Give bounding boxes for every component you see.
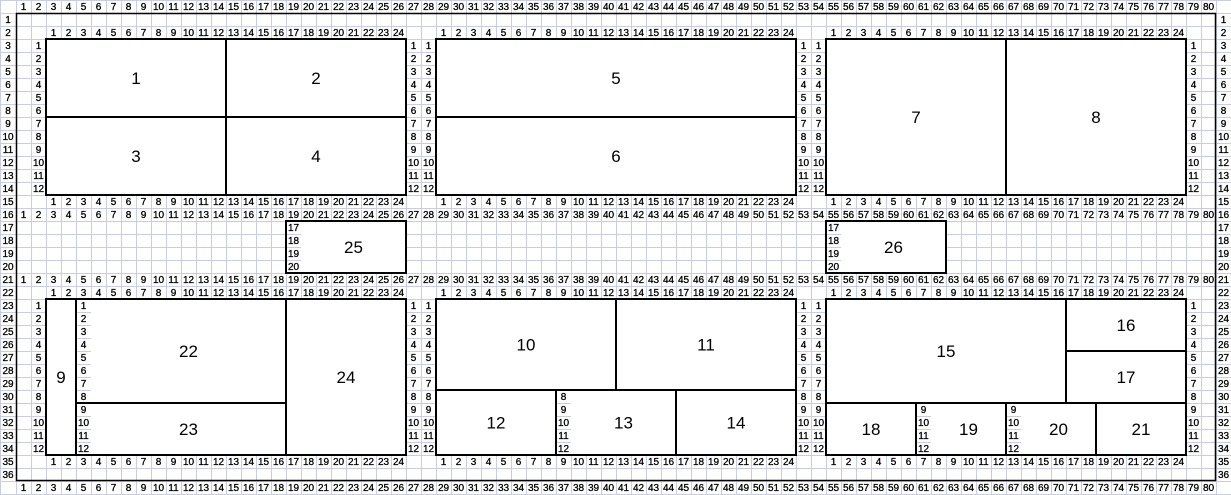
- svg-text:8: 8: [426, 392, 432, 403]
- svg-text:9: 9: [1191, 405, 1197, 416]
- svg-text:73: 73: [1098, 2, 1110, 13]
- svg-text:24: 24: [1218, 314, 1230, 325]
- svg-text:18: 18: [693, 457, 705, 468]
- svg-text:9: 9: [411, 145, 417, 156]
- svg-text:15: 15: [258, 288, 270, 299]
- svg-text:2: 2: [66, 28, 72, 39]
- svg-text:22: 22: [753, 288, 765, 299]
- svg-text:3: 3: [411, 67, 417, 78]
- svg-text:42: 42: [633, 210, 645, 221]
- svg-text:8: 8: [936, 28, 942, 39]
- svg-text:59: 59: [888, 275, 900, 286]
- svg-text:16: 16: [243, 210, 255, 221]
- svg-text:21: 21: [318, 483, 330, 494]
- svg-text:24: 24: [1173, 28, 1185, 39]
- svg-text:13: 13: [1008, 197, 1020, 208]
- svg-text:19: 19: [708, 457, 720, 468]
- svg-text:53: 53: [798, 2, 810, 13]
- svg-text:4: 4: [801, 80, 807, 91]
- svg-text:11: 11: [813, 171, 824, 182]
- svg-text:15: 15: [1218, 197, 1230, 208]
- svg-text:17: 17: [258, 210, 270, 221]
- svg-text:66: 66: [993, 2, 1005, 13]
- svg-text:6: 6: [611, 147, 620, 166]
- svg-text:2: 2: [36, 54, 42, 65]
- svg-text:5: 5: [501, 457, 507, 468]
- svg-text:1: 1: [816, 301, 822, 312]
- svg-text:42: 42: [633, 275, 645, 286]
- svg-text:9: 9: [801, 145, 807, 156]
- svg-text:5: 5: [36, 93, 42, 104]
- svg-text:19: 19: [318, 288, 330, 299]
- svg-text:1: 1: [426, 301, 432, 312]
- svg-text:10: 10: [1008, 418, 1020, 429]
- svg-text:11: 11: [33, 431, 44, 442]
- svg-text:6: 6: [516, 197, 522, 208]
- svg-text:10: 10: [813, 158, 825, 169]
- svg-text:3: 3: [816, 327, 822, 338]
- svg-text:76: 76: [1143, 2, 1155, 13]
- svg-text:1: 1: [441, 28, 447, 39]
- svg-text:23: 23: [348, 210, 360, 221]
- svg-text:24: 24: [393, 28, 405, 39]
- svg-text:4: 4: [96, 457, 102, 468]
- svg-text:17: 17: [1068, 288, 1080, 299]
- svg-text:15: 15: [2, 197, 14, 208]
- svg-text:2: 2: [456, 457, 462, 468]
- svg-text:14: 14: [243, 28, 255, 39]
- svg-text:2: 2: [846, 288, 852, 299]
- svg-text:9: 9: [561, 457, 567, 468]
- svg-text:1: 1: [21, 210, 27, 221]
- svg-text:20: 20: [828, 262, 840, 273]
- svg-text:5: 5: [1191, 353, 1197, 364]
- svg-text:50: 50: [753, 483, 765, 494]
- svg-text:2: 2: [426, 54, 432, 65]
- svg-text:33: 33: [498, 210, 510, 221]
- svg-text:8: 8: [936, 288, 942, 299]
- svg-text:10: 10: [153, 275, 165, 286]
- svg-text:11: 11: [978, 288, 989, 299]
- svg-text:3: 3: [81, 28, 87, 39]
- svg-text:60: 60: [903, 210, 915, 221]
- svg-text:47: 47: [708, 483, 720, 494]
- svg-text:12: 12: [603, 457, 615, 468]
- svg-text:3: 3: [411, 327, 417, 338]
- svg-text:15: 15: [648, 457, 660, 468]
- svg-text:67: 67: [1008, 483, 1020, 494]
- svg-text:35: 35: [528, 2, 540, 13]
- svg-text:19: 19: [288, 2, 300, 13]
- svg-text:10: 10: [78, 418, 90, 429]
- svg-text:76: 76: [1143, 275, 1155, 286]
- svg-text:8: 8: [1191, 132, 1197, 143]
- svg-text:17: 17: [288, 223, 300, 234]
- svg-text:22: 22: [333, 275, 345, 286]
- svg-text:23: 23: [768, 28, 780, 39]
- svg-text:2: 2: [66, 457, 72, 468]
- svg-text:33: 33: [498, 2, 510, 13]
- svg-text:57: 57: [858, 483, 870, 494]
- svg-text:8: 8: [36, 132, 42, 143]
- svg-text:44: 44: [663, 483, 675, 494]
- svg-text:64: 64: [963, 483, 975, 494]
- svg-text:5: 5: [891, 28, 897, 39]
- svg-text:39: 39: [588, 2, 600, 13]
- svg-text:4: 4: [311, 147, 320, 166]
- svg-text:18: 18: [273, 2, 285, 13]
- svg-text:2: 2: [456, 28, 462, 39]
- svg-text:41: 41: [618, 2, 630, 13]
- svg-text:60: 60: [903, 2, 915, 13]
- svg-text:3: 3: [471, 288, 477, 299]
- svg-text:45: 45: [678, 275, 690, 286]
- svg-text:14: 14: [633, 288, 645, 299]
- svg-text:13: 13: [1218, 171, 1230, 182]
- svg-text:73: 73: [1098, 210, 1110, 221]
- svg-text:11: 11: [1008, 431, 1019, 442]
- svg-text:26: 26: [884, 238, 903, 257]
- svg-text:1: 1: [801, 41, 807, 52]
- svg-text:7: 7: [531, 288, 537, 299]
- svg-text:7: 7: [81, 379, 87, 390]
- svg-text:55: 55: [828, 210, 840, 221]
- svg-text:18: 18: [2, 236, 14, 247]
- svg-text:45: 45: [678, 2, 690, 13]
- svg-text:46: 46: [693, 210, 705, 221]
- svg-text:10: 10: [33, 158, 45, 169]
- svg-text:25: 25: [378, 275, 390, 286]
- svg-text:24: 24: [393, 288, 405, 299]
- svg-text:8: 8: [546, 28, 552, 39]
- svg-text:2: 2: [36, 314, 42, 325]
- svg-text:16: 16: [1053, 288, 1065, 299]
- svg-text:14: 14: [1023, 457, 1035, 468]
- svg-text:14: 14: [213, 2, 225, 13]
- svg-text:1: 1: [441, 457, 447, 468]
- svg-text:35: 35: [528, 483, 540, 494]
- svg-text:3: 3: [81, 288, 87, 299]
- svg-text:3: 3: [1191, 327, 1197, 338]
- svg-text:67: 67: [1008, 2, 1020, 13]
- svg-text:47: 47: [708, 210, 720, 221]
- svg-text:60: 60: [903, 483, 915, 494]
- svg-text:9: 9: [56, 368, 65, 387]
- svg-text:34: 34: [513, 275, 525, 286]
- svg-text:11: 11: [198, 197, 209, 208]
- svg-text:7: 7: [111, 210, 117, 221]
- svg-text:4: 4: [81, 340, 87, 351]
- svg-text:11: 11: [588, 288, 599, 299]
- svg-text:20: 20: [723, 457, 735, 468]
- svg-text:22: 22: [1218, 288, 1230, 299]
- svg-text:54: 54: [813, 275, 825, 286]
- svg-text:50: 50: [753, 210, 765, 221]
- svg-text:8: 8: [5, 106, 11, 117]
- svg-text:11: 11: [978, 457, 989, 468]
- svg-text:7: 7: [141, 197, 147, 208]
- svg-text:14: 14: [633, 28, 645, 39]
- svg-text:31: 31: [468, 275, 480, 286]
- svg-text:1: 1: [51, 457, 57, 468]
- svg-text:15: 15: [1038, 28, 1050, 39]
- svg-text:61: 61: [918, 275, 930, 286]
- svg-text:12: 12: [798, 444, 810, 455]
- svg-text:43: 43: [648, 210, 660, 221]
- svg-text:21: 21: [738, 197, 750, 208]
- svg-text:22: 22: [753, 197, 765, 208]
- svg-text:4: 4: [486, 197, 492, 208]
- svg-text:1: 1: [411, 301, 417, 312]
- svg-text:11: 11: [558, 431, 569, 442]
- svg-text:4: 4: [1221, 54, 1227, 65]
- svg-text:56: 56: [843, 2, 855, 13]
- svg-text:9: 9: [81, 405, 87, 416]
- svg-text:41: 41: [618, 483, 630, 494]
- svg-text:69: 69: [1038, 275, 1050, 286]
- svg-text:21: 21: [318, 275, 330, 286]
- svg-text:9: 9: [36, 405, 42, 416]
- svg-text:10: 10: [423, 418, 435, 429]
- svg-text:49: 49: [738, 483, 750, 494]
- svg-text:4: 4: [876, 288, 882, 299]
- svg-text:20: 20: [333, 457, 345, 468]
- svg-text:1: 1: [831, 288, 837, 299]
- svg-text:7: 7: [801, 119, 807, 130]
- svg-text:1: 1: [131, 69, 140, 88]
- svg-text:3: 3: [81, 197, 87, 208]
- svg-text:11: 11: [978, 197, 989, 208]
- svg-text:24: 24: [363, 483, 375, 494]
- svg-text:13: 13: [618, 288, 630, 299]
- svg-text:10: 10: [1188, 418, 1200, 429]
- svg-text:11: 11: [423, 171, 434, 182]
- svg-text:13: 13: [228, 197, 240, 208]
- svg-text:48: 48: [723, 275, 735, 286]
- svg-text:22: 22: [333, 2, 345, 13]
- svg-text:23: 23: [768, 457, 780, 468]
- svg-text:8: 8: [81, 392, 87, 403]
- svg-text:36: 36: [543, 483, 555, 494]
- svg-text:27: 27: [408, 275, 420, 286]
- svg-text:18: 18: [303, 28, 315, 39]
- svg-text:15: 15: [228, 210, 240, 221]
- svg-text:15: 15: [1038, 288, 1050, 299]
- svg-text:56: 56: [843, 483, 855, 494]
- svg-text:16: 16: [1053, 197, 1065, 208]
- svg-text:4: 4: [876, 28, 882, 39]
- svg-text:11: 11: [33, 171, 44, 182]
- svg-text:9: 9: [1221, 119, 1227, 130]
- svg-text:3: 3: [801, 327, 807, 338]
- svg-text:12: 12: [813, 184, 825, 195]
- svg-text:49: 49: [738, 210, 750, 221]
- svg-text:2: 2: [411, 54, 417, 65]
- svg-text:7: 7: [111, 2, 117, 13]
- svg-text:2: 2: [66, 197, 72, 208]
- svg-text:66: 66: [993, 210, 1005, 221]
- svg-text:51: 51: [768, 483, 780, 494]
- svg-text:17: 17: [288, 457, 300, 468]
- svg-text:57: 57: [858, 2, 870, 13]
- svg-text:7: 7: [816, 379, 822, 390]
- svg-text:62: 62: [933, 275, 945, 286]
- svg-text:14: 14: [1023, 197, 1035, 208]
- svg-text:5: 5: [611, 69, 620, 88]
- svg-text:19: 19: [2, 249, 14, 260]
- svg-text:17: 17: [678, 457, 690, 468]
- svg-text:6: 6: [126, 197, 132, 208]
- svg-text:2: 2: [846, 28, 852, 39]
- svg-text:13: 13: [618, 457, 630, 468]
- svg-text:9: 9: [36, 145, 42, 156]
- svg-text:55: 55: [828, 2, 840, 13]
- svg-text:24: 24: [1173, 197, 1185, 208]
- svg-text:16: 16: [273, 28, 285, 39]
- svg-text:3: 3: [861, 28, 867, 39]
- svg-text:18: 18: [1083, 288, 1095, 299]
- svg-text:14: 14: [213, 275, 225, 286]
- svg-text:24: 24: [363, 210, 375, 221]
- svg-text:61: 61: [918, 483, 930, 494]
- svg-text:21: 21: [1128, 288, 1140, 299]
- svg-text:66: 66: [993, 483, 1005, 494]
- svg-text:77: 77: [1158, 2, 1170, 13]
- svg-text:23: 23: [348, 2, 360, 13]
- svg-text:17: 17: [288, 288, 300, 299]
- svg-text:25: 25: [2, 327, 14, 338]
- svg-text:71: 71: [1068, 210, 1080, 221]
- svg-text:51: 51: [768, 210, 780, 221]
- svg-text:9: 9: [141, 210, 147, 221]
- svg-text:22: 22: [363, 28, 375, 39]
- svg-text:3: 3: [51, 275, 57, 286]
- svg-text:10: 10: [1218, 132, 1230, 143]
- svg-text:13: 13: [614, 414, 633, 433]
- svg-text:29: 29: [438, 483, 450, 494]
- svg-text:4: 4: [36, 340, 42, 351]
- svg-text:22: 22: [333, 483, 345, 494]
- svg-text:48: 48: [723, 210, 735, 221]
- svg-text:53: 53: [798, 275, 810, 286]
- svg-text:18: 18: [693, 197, 705, 208]
- svg-text:80: 80: [1203, 210, 1215, 221]
- svg-text:2: 2: [411, 314, 417, 325]
- svg-text:12: 12: [813, 444, 825, 455]
- svg-text:75: 75: [1128, 2, 1140, 13]
- svg-text:37: 37: [558, 275, 570, 286]
- svg-text:6: 6: [516, 288, 522, 299]
- svg-text:2: 2: [816, 314, 822, 325]
- svg-text:6: 6: [906, 28, 912, 39]
- svg-text:2: 2: [846, 457, 852, 468]
- svg-text:21: 21: [348, 457, 360, 468]
- svg-text:17: 17: [1068, 197, 1080, 208]
- svg-text:6: 6: [1221, 80, 1227, 91]
- svg-text:19: 19: [288, 210, 300, 221]
- svg-text:10: 10: [153, 210, 165, 221]
- svg-text:20: 20: [723, 288, 735, 299]
- svg-text:73: 73: [1098, 483, 1110, 494]
- svg-text:3: 3: [131, 147, 140, 166]
- svg-text:2: 2: [456, 288, 462, 299]
- svg-text:15: 15: [1038, 457, 1050, 468]
- svg-text:10: 10: [183, 28, 195, 39]
- svg-text:10: 10: [517, 336, 536, 355]
- svg-text:33: 33: [498, 483, 510, 494]
- svg-text:8: 8: [126, 275, 132, 286]
- svg-text:44: 44: [663, 2, 675, 13]
- svg-text:27: 27: [2, 353, 14, 364]
- svg-text:46: 46: [693, 275, 705, 286]
- svg-text:19: 19: [959, 420, 978, 439]
- svg-text:59: 59: [888, 2, 900, 13]
- svg-text:14: 14: [243, 197, 255, 208]
- svg-text:17: 17: [678, 288, 690, 299]
- svg-text:3: 3: [1221, 41, 1227, 52]
- svg-text:19: 19: [318, 28, 330, 39]
- svg-text:1: 1: [831, 28, 837, 39]
- svg-text:6: 6: [126, 457, 132, 468]
- svg-text:7: 7: [36, 379, 42, 390]
- svg-text:6: 6: [96, 275, 102, 286]
- svg-text:43: 43: [648, 2, 660, 13]
- svg-text:5: 5: [36, 353, 42, 364]
- svg-text:9: 9: [951, 457, 957, 468]
- svg-text:1: 1: [51, 288, 57, 299]
- svg-text:21: 21: [1218, 275, 1230, 286]
- svg-text:36: 36: [543, 275, 555, 286]
- svg-text:24: 24: [337, 368, 356, 387]
- svg-text:5: 5: [1221, 67, 1227, 78]
- svg-text:63: 63: [948, 275, 960, 286]
- svg-text:30: 30: [2, 392, 14, 403]
- svg-text:15: 15: [648, 288, 660, 299]
- svg-text:16: 16: [663, 197, 675, 208]
- svg-text:2: 2: [66, 288, 72, 299]
- svg-text:6: 6: [411, 366, 417, 377]
- svg-text:11: 11: [798, 431, 809, 442]
- svg-text:62: 62: [933, 210, 945, 221]
- svg-text:14: 14: [213, 210, 225, 221]
- svg-text:5: 5: [816, 93, 822, 104]
- svg-text:6: 6: [81, 366, 87, 377]
- svg-text:4: 4: [66, 2, 72, 13]
- svg-text:12: 12: [213, 197, 225, 208]
- svg-text:12: 12: [558, 444, 570, 455]
- svg-text:10: 10: [183, 457, 195, 468]
- svg-text:71: 71: [1068, 275, 1080, 286]
- svg-text:2: 2: [36, 210, 42, 221]
- svg-text:5: 5: [801, 353, 807, 364]
- svg-text:15: 15: [228, 2, 240, 13]
- svg-text:11: 11: [978, 28, 989, 39]
- svg-text:10: 10: [408, 158, 420, 169]
- svg-text:13: 13: [228, 457, 240, 468]
- svg-text:2: 2: [36, 2, 42, 13]
- svg-text:14: 14: [633, 197, 645, 208]
- svg-text:9: 9: [561, 197, 567, 208]
- svg-text:7: 7: [816, 119, 822, 130]
- svg-text:11: 11: [1188, 431, 1199, 442]
- svg-text:21: 21: [1128, 28, 1140, 39]
- svg-text:41: 41: [618, 210, 630, 221]
- svg-text:30: 30: [453, 483, 465, 494]
- svg-text:2: 2: [846, 197, 852, 208]
- svg-text:9: 9: [816, 405, 822, 416]
- svg-text:7: 7: [111, 275, 117, 286]
- svg-text:6: 6: [426, 366, 432, 377]
